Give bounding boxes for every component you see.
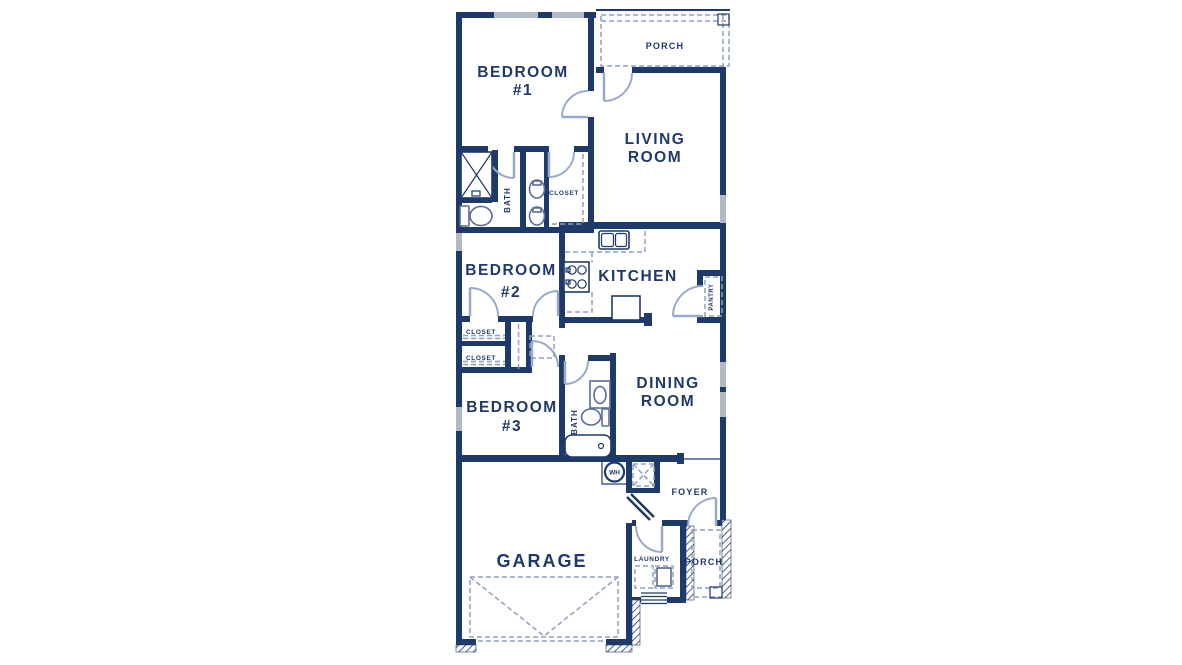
porch-top-outline xyxy=(601,14,729,66)
door-bedroom2 xyxy=(533,291,558,316)
label-foyer: FOYER xyxy=(671,487,708,497)
label-wh: WH xyxy=(609,470,620,477)
label-bedroom3-2: #3 xyxy=(502,418,522,435)
door-laundry xyxy=(636,526,662,552)
label-pantry: PANTRY xyxy=(709,284,715,311)
door-front-entry xyxy=(688,498,716,526)
label-bath2: BATH xyxy=(570,409,579,435)
hatched-edges xyxy=(456,520,731,652)
window-bedroom2 xyxy=(456,233,462,251)
window-bedroom1-a xyxy=(494,12,538,18)
kitchen-sink xyxy=(599,231,629,249)
floor-plan-svg: PORCH BEDROOM #1 LIVING ROOM BATH CLOSET… xyxy=(0,0,1182,665)
label-living-1: LIVING xyxy=(625,131,686,148)
label-closet-lower: CLOSET xyxy=(466,355,496,362)
label-dining-1: DINING xyxy=(636,375,699,392)
steps xyxy=(641,593,667,604)
door-pantry xyxy=(673,286,703,316)
label-bedroom2-1: BEDROOM xyxy=(465,262,556,279)
door-bedroom1 xyxy=(562,91,588,117)
vanity-bath2 xyxy=(590,381,610,408)
vanity-bath1 xyxy=(530,180,545,225)
label-bedroom1-2: #1 xyxy=(513,82,533,99)
label-bedroom1-1: BEDROOM xyxy=(477,64,568,81)
window-bedroom1-b xyxy=(552,12,584,18)
window-dining-b xyxy=(720,392,726,417)
door-garage-entry xyxy=(627,494,654,520)
refrigerator xyxy=(612,296,640,320)
label-bedroom3-1: BEDROOM xyxy=(466,399,557,416)
label-bedroom2-2: #2 xyxy=(501,284,521,301)
label-laundry: LAUNDRY xyxy=(634,556,670,563)
door-porch-living xyxy=(604,73,632,101)
door-bedroom2-hall xyxy=(470,288,498,316)
label-garage: GARAGE xyxy=(496,551,587,571)
toilet-bath1 xyxy=(460,206,492,226)
label-kitchen: KITCHEN xyxy=(598,268,677,285)
room-labels: PORCH BEDROOM #1 LIVING ROOM BATH CLOSET… xyxy=(465,41,723,571)
label-bath1: BATH xyxy=(503,187,512,213)
washer-dryer xyxy=(635,566,673,588)
hall-linen-door xyxy=(530,336,554,358)
bathtub xyxy=(565,435,611,457)
window-dining-a xyxy=(720,362,726,387)
label-porch-bottom: PORCH xyxy=(685,557,724,567)
shower xyxy=(461,152,492,198)
door-bath2 xyxy=(565,361,588,384)
label-dining-2: ROOM xyxy=(641,393,695,410)
label-living-2: ROOM xyxy=(628,149,682,166)
closet-master-shelf xyxy=(552,154,583,224)
toilet-bath2 xyxy=(582,409,610,426)
window-bedroom3 xyxy=(456,407,462,431)
label-closet-upper: CLOSET xyxy=(466,329,496,336)
coat-closet-shelf xyxy=(633,464,654,486)
garage-door xyxy=(470,577,618,641)
door-master-closet xyxy=(549,152,574,177)
window-living xyxy=(720,195,726,223)
stove xyxy=(564,262,589,292)
floor-plan-canvas: PORCH BEDROOM #1 LIVING ROOM BATH CLOSET… xyxy=(0,0,1182,665)
label-porch-top: PORCH xyxy=(646,41,685,51)
label-closet-master: CLOSET xyxy=(549,190,579,197)
